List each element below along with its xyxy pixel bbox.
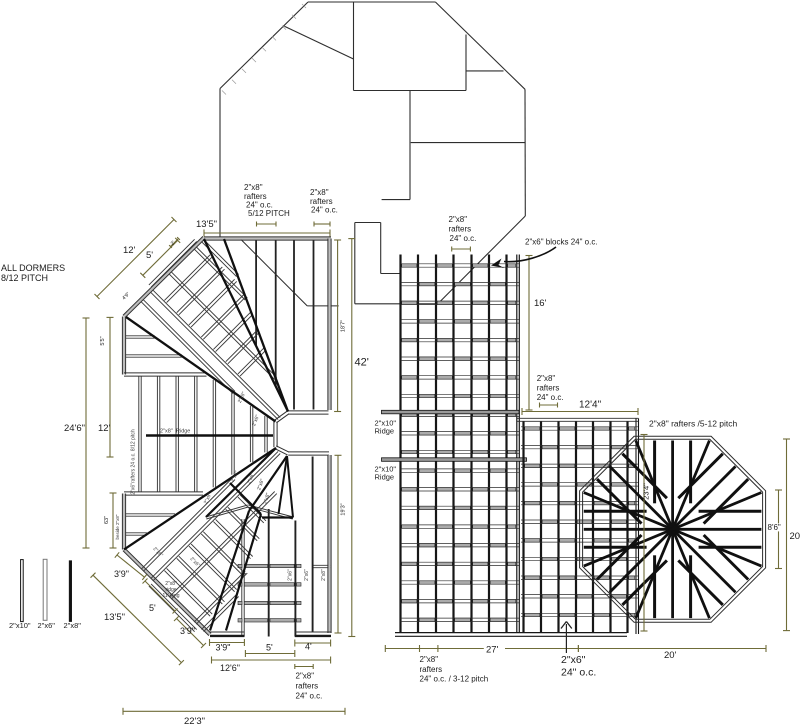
svg-text:rafters: rafters bbox=[449, 225, 472, 234]
svg-text:2"x8": 2"x8" bbox=[310, 188, 329, 197]
svg-text:8/12 PITCH: 8/12 PITCH bbox=[1, 273, 48, 283]
svg-text:2"x8": 2"x8" bbox=[64, 621, 82, 630]
svg-text:2"x8": 2"x8" bbox=[296, 672, 315, 681]
svg-text:12': 12' bbox=[98, 423, 111, 434]
svg-text:5': 5' bbox=[146, 250, 153, 261]
svg-text:16': 16' bbox=[534, 298, 547, 309]
svg-text:24" o.c.: 24" o.c. bbox=[537, 393, 564, 402]
svg-text:4': 4' bbox=[305, 642, 312, 652]
svg-text:2"x8": 2"x8" bbox=[537, 374, 556, 383]
svg-text:19'3": 19'3" bbox=[341, 503, 347, 515]
svg-text:Ridge: Ridge bbox=[176, 429, 190, 435]
svg-text:24" o.c.: 24" o.c. bbox=[561, 667, 596, 679]
svg-text:13'5": 13'5" bbox=[196, 219, 217, 230]
svg-text:24" o.c. / 3-12 pitch: 24" o.c. / 3-12 pitch bbox=[420, 675, 489, 684]
svg-text:Ridge: Ridge bbox=[375, 472, 395, 481]
svg-text:3'9": 3'9" bbox=[114, 569, 129, 579]
svg-text:2"x6"rafters 24 o.c. 8/12 pitc: 2"x6"rafters 24 o.c. 8/12 pitch bbox=[131, 429, 137, 494]
svg-text:13'5": 13'5" bbox=[104, 612, 125, 623]
svg-text:2"x8" rafters /5-12 pitch: 2"x8" rafters /5-12 pitch bbox=[649, 419, 738, 429]
svg-text:3'9": 3'9" bbox=[216, 643, 231, 653]
svg-text:23'4": 23'4" bbox=[642, 483, 651, 500]
svg-text:2"x8": 2"x8" bbox=[321, 569, 327, 581]
svg-text:5': 5' bbox=[266, 643, 273, 653]
svg-text:42': 42' bbox=[355, 357, 369, 369]
svg-text:2"x6": 2"x6" bbox=[288, 569, 294, 581]
svg-text:24'6": 24'6" bbox=[64, 423, 85, 434]
svg-text:63": 63" bbox=[104, 516, 110, 524]
svg-text:2"x8": 2"x8" bbox=[420, 655, 439, 664]
svg-text:5': 5' bbox=[149, 603, 156, 613]
svg-text:20': 20' bbox=[790, 531, 800, 542]
svg-text:2"x8": 2"x8" bbox=[449, 215, 468, 224]
svg-text:24" o.c.: 24" o.c. bbox=[450, 234, 477, 243]
svg-text:5'5": 5'5" bbox=[100, 336, 106, 345]
svg-text:rafters: rafters bbox=[296, 682, 319, 691]
svg-text:2"x6" blocks 24" o.c.: 2"x6" blocks 24" o.c. bbox=[525, 238, 598, 247]
svg-text:rafters: rafters bbox=[420, 665, 443, 674]
svg-text:24" o.c.: 24" o.c. bbox=[296, 692, 323, 701]
svg-text:2"x6": 2"x6" bbox=[304, 569, 310, 581]
svg-text:12'6": 12'6" bbox=[220, 663, 240, 673]
svg-text:beside 2"x8": beside 2"x8" bbox=[115, 514, 120, 539]
svg-text:27': 27' bbox=[486, 644, 499, 655]
svg-text:2"x8": 2"x8" bbox=[244, 183, 263, 192]
svg-text:2"x6": 2"x6" bbox=[38, 621, 56, 630]
svg-text:11' long: 11' long bbox=[163, 593, 180, 599]
svg-text:18'7": 18'7" bbox=[341, 320, 347, 332]
svg-text:5/12 PITCH: 5/12 PITCH bbox=[248, 209, 290, 218]
svg-text:22'3": 22'3" bbox=[184, 716, 205, 727]
svg-text:rafters: rafters bbox=[537, 384, 560, 393]
svg-text:12'4": 12'4" bbox=[579, 400, 602, 411]
svg-text:8'6": 8'6" bbox=[768, 523, 781, 532]
svg-text:2"x6": 2"x6" bbox=[561, 654, 586, 666]
svg-text:24" o.c.: 24" o.c. bbox=[311, 206, 338, 215]
svg-text:ALL DORMERS: ALL DORMERS bbox=[1, 263, 65, 273]
svg-text:20': 20' bbox=[664, 650, 677, 661]
svg-text:2"x8": 2"x8" bbox=[160, 429, 173, 435]
svg-text:2"x10": 2"x10" bbox=[9, 621, 31, 630]
svg-text:Ridge: Ridge bbox=[375, 426, 395, 435]
svg-text:12': 12' bbox=[123, 245, 136, 256]
svg-text:3'9": 3'9" bbox=[180, 626, 195, 636]
